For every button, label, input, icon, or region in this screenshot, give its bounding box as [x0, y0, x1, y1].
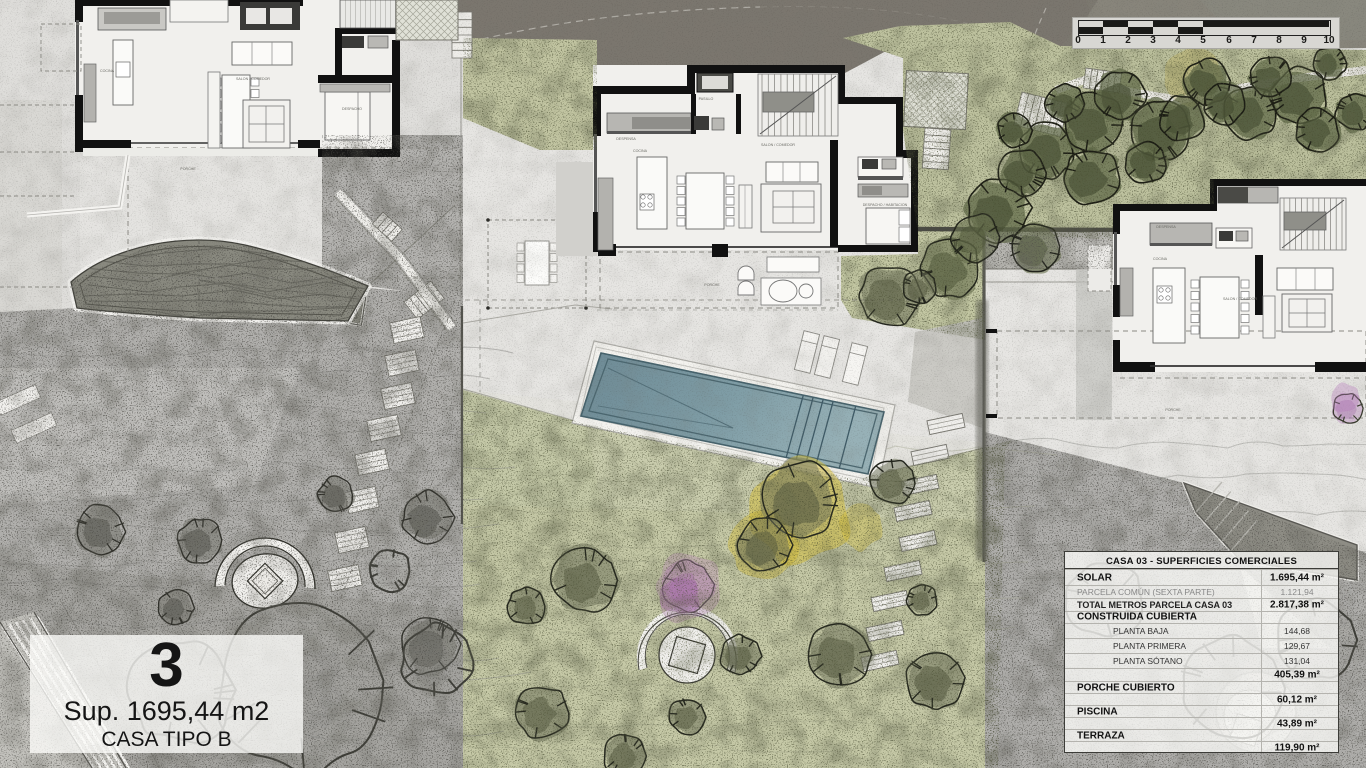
svg-text:COCINA: COCINA — [1153, 257, 1168, 261]
svg-text:DESPENSA: DESPENSA — [616, 137, 636, 141]
svg-text:SALON / COMEDOR: SALON / COMEDOR — [236, 77, 270, 81]
svg-text:PORCHE: PORCHE — [704, 283, 720, 287]
svg-text:PORCHE: PORCHE — [180, 167, 196, 171]
svg-text:DESPENSA: DESPENSA — [1156, 225, 1176, 229]
svg-text:SALON / COMEDOR: SALON / COMEDOR — [761, 143, 795, 147]
svg-text:DESPACHO / HABITACION: DESPACHO / HABITACION — [863, 203, 908, 207]
svg-text:COCINA: COCINA — [633, 149, 648, 153]
svg-text:COCINA: COCINA — [100, 69, 115, 73]
svg-text:PASILLO: PASILLO — [699, 97, 714, 101]
svg-text:PORCHE: PORCHE — [1165, 408, 1181, 412]
svg-text:DESPACHO: DESPACHO — [342, 107, 362, 111]
svg-text:SALON / COMEDOR: SALON / COMEDOR — [1223, 297, 1257, 301]
